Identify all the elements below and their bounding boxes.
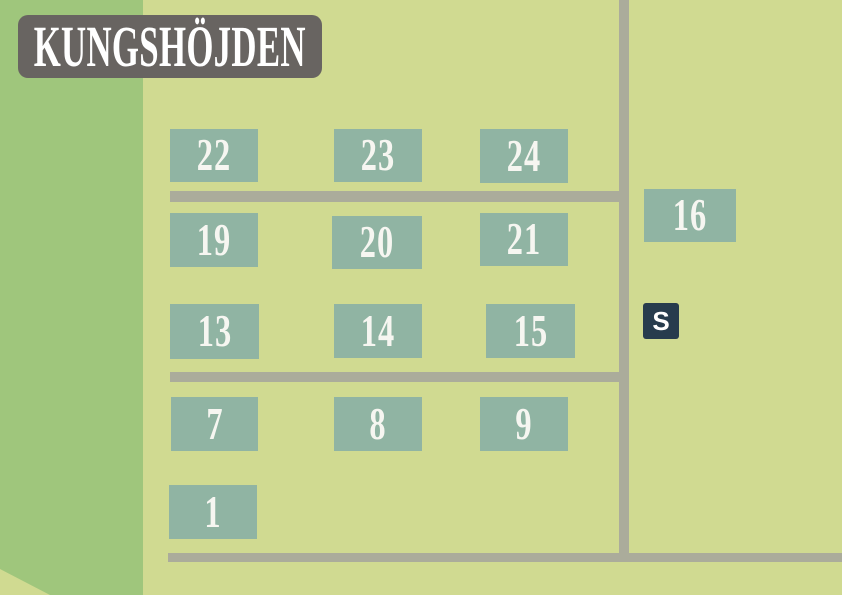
plot-number: 15	[513, 309, 548, 354]
plot-box-21: 21	[480, 213, 568, 266]
plot-number: 8	[369, 402, 386, 447]
plot-box-13: 13	[170, 304, 259, 359]
plot-number: 19	[197, 218, 232, 263]
plot-number: 13	[197, 309, 232, 354]
forest-band	[0, 0, 143, 595]
plot-box-24: 24	[480, 129, 568, 183]
plot-number: 20	[360, 220, 395, 265]
plot-box-1: 1	[169, 485, 257, 539]
road-horizontal-bottom	[168, 553, 842, 562]
plot-number: 16	[673, 193, 708, 238]
plot-box-9: 9	[480, 397, 568, 451]
plot-box-15: 15	[486, 304, 575, 358]
plot-box-16: 16	[644, 189, 736, 242]
plot-box-8: 8	[334, 397, 422, 451]
plot-box-22: 22	[170, 129, 258, 182]
service-marker-label: S	[652, 308, 669, 334]
map-title-plate: KUNGSHÖJDEN	[18, 15, 322, 78]
plot-number: 9	[515, 402, 532, 447]
road-horizontal-middle	[170, 372, 629, 382]
map-title: KUNGSHÖJDEN	[34, 18, 306, 76]
service-marker: S	[643, 303, 679, 339]
road-vertical	[619, 0, 629, 562]
plot-number: 24	[507, 134, 542, 179]
plot-number: 14	[361, 309, 396, 354]
plot-box-20: 20	[332, 216, 422, 269]
plot-number: 22	[197, 133, 232, 178]
plot-box-23: 23	[334, 129, 422, 182]
plot-box-7: 7	[171, 397, 258, 451]
kungshojden-site-map: 222324192021131415789116 KUNGSHÖJDEN S	[0, 0, 842, 595]
plot-box-14: 14	[334, 304, 422, 358]
plot-box-19: 19	[170, 213, 258, 267]
plot-number: 21	[507, 217, 542, 262]
plot-number: 1	[204, 490, 221, 535]
plot-number: 7	[206, 402, 223, 447]
road-horizontal-upper	[170, 191, 629, 202]
plot-number: 23	[361, 133, 396, 178]
